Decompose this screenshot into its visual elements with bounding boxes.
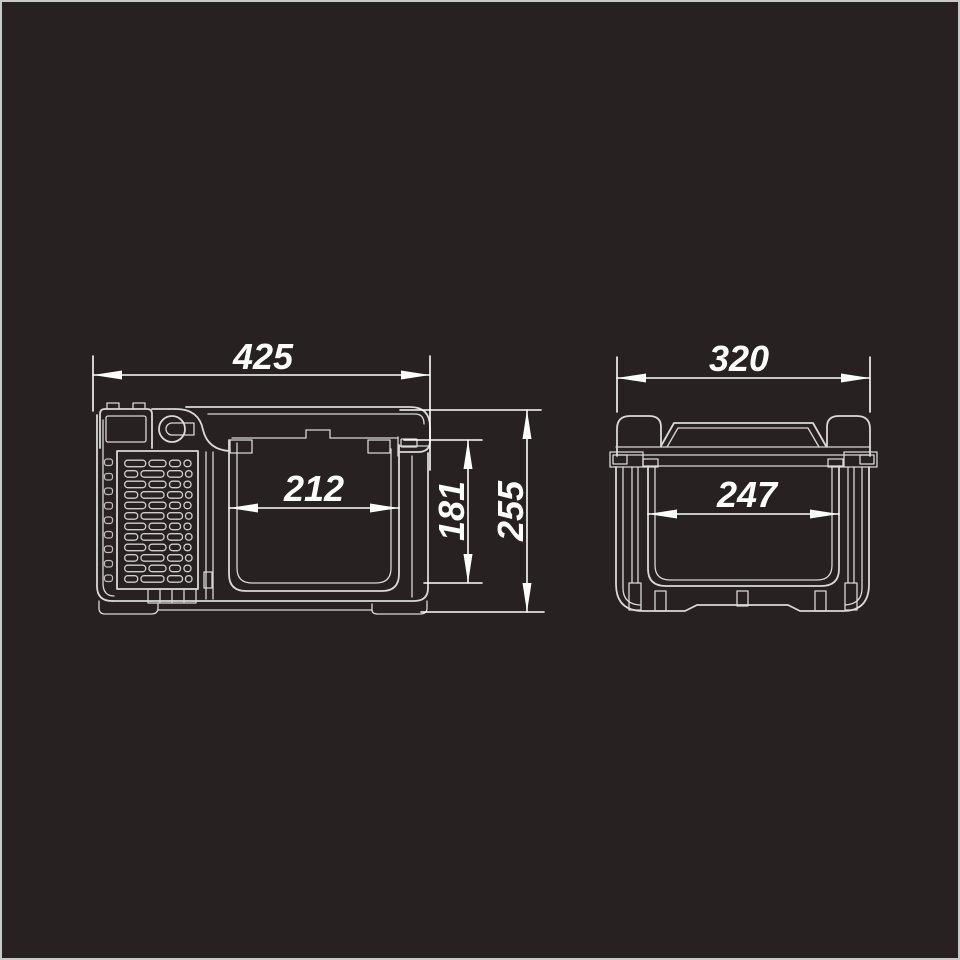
- front-overall-height-value: 255: [490, 480, 531, 542]
- front-grille-slots: [124, 458, 193, 585]
- side-overall-width-value: 320: [709, 338, 769, 379]
- front-overall-width-value: 425: [232, 336, 294, 377]
- cooler-dimension-drawing: 425 212 181 255: [0, 0, 960, 960]
- side-inner-width-value: 247: [716, 474, 779, 515]
- front-inner-width-value: 212: [283, 468, 344, 509]
- front-grille-left-slot-column: [103, 455, 115, 586]
- front-inner-depth-value: 181: [431, 481, 472, 541]
